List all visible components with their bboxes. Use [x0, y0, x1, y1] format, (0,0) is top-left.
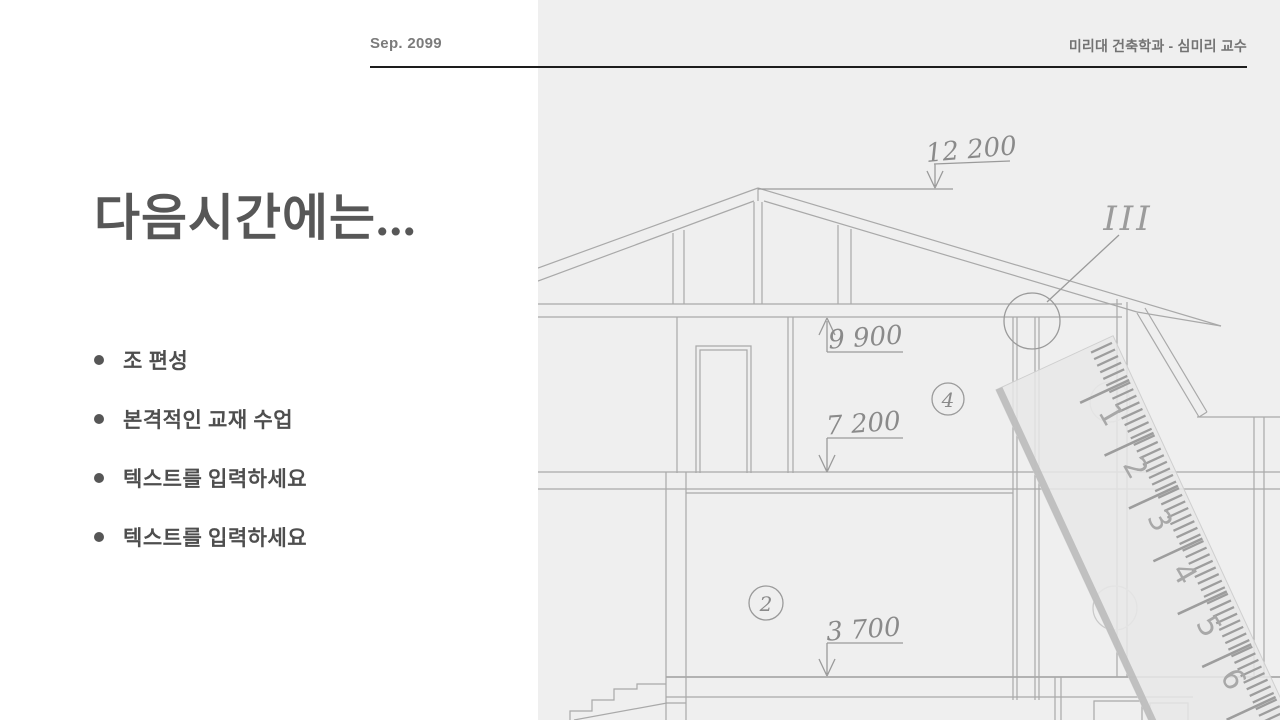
bullet-text: 텍스트를 입력하세요	[123, 463, 307, 493]
bullet-text: 텍스트를 입력하세요	[123, 522, 307, 552]
roof-left-outer	[538, 188, 758, 268]
slide-date: Sep. 2099	[370, 35, 442, 52]
attic-post-left	[673, 230, 684, 304]
bullet-text: 본격적인 교재 수업	[123, 404, 293, 434]
stairs	[570, 684, 666, 720]
list-item: 텍스트를 입력하세요	[94, 524, 307, 550]
dim-7200-mark	[819, 438, 903, 472]
dim-label-3700: 3 700	[825, 612, 901, 647]
basement-wall	[1055, 677, 1061, 720]
dim-label-12200: 12 200	[925, 131, 1018, 169]
list-item: 조 편성	[94, 347, 307, 373]
ceiling-slab	[538, 304, 1122, 317]
list-item: 텍스트를 입력하세요	[94, 465, 307, 491]
blueprint-drawing: 12 200 9 900 7 200 3 700 4 2 III 1	[538, 0, 1280, 720]
list-item: 본격적인 교재 수업	[94, 406, 307, 432]
attic-post-center	[754, 202, 762, 304]
downspout	[1137, 308, 1207, 417]
section-label-2: 2	[759, 592, 773, 616]
header-divider	[370, 66, 1247, 68]
slide-affiliation: 미리대 건축학과 - 심미리 교수	[1069, 36, 1247, 56]
door-outer	[696, 346, 751, 473]
dim-12200-mark	[758, 161, 1010, 189]
presentation-slide: 12 200 9 900 7 200 3 700 4 2 III 1	[0, 0, 1280, 720]
section-label-4: 4	[941, 388, 955, 412]
attic-post-right	[838, 225, 851, 304]
roof-left-inner	[538, 201, 754, 281]
dim-label-9900: 9 900	[827, 320, 903, 355]
detail-label-iii: III	[1102, 199, 1152, 239]
dim-label-7200: 7 200	[825, 406, 901, 441]
bullet-dot-icon	[94, 473, 104, 483]
slide-title: 다음시간에는...	[94, 178, 417, 250]
bullet-list: 조 편성 본격적인 교재 수업 텍스트를 입력하세요 텍스트를 입력하세요	[94, 347, 307, 583]
dim-3700-mark	[819, 643, 903, 676]
wall-1f-left	[666, 472, 686, 720]
bullet-dot-icon	[94, 532, 104, 542]
bullet-text: 조 편성	[123, 345, 188, 375]
blueprint-panel: 12 200 9 900 7 200 3 700 4 2 III 1	[538, 0, 1280, 720]
roof-right-inner	[764, 201, 1137, 312]
door-inner	[700, 350, 747, 473]
bullet-dot-icon	[94, 414, 104, 424]
bullet-dot-icon	[94, 355, 104, 365]
wall-2f-mid	[788, 317, 793, 473]
